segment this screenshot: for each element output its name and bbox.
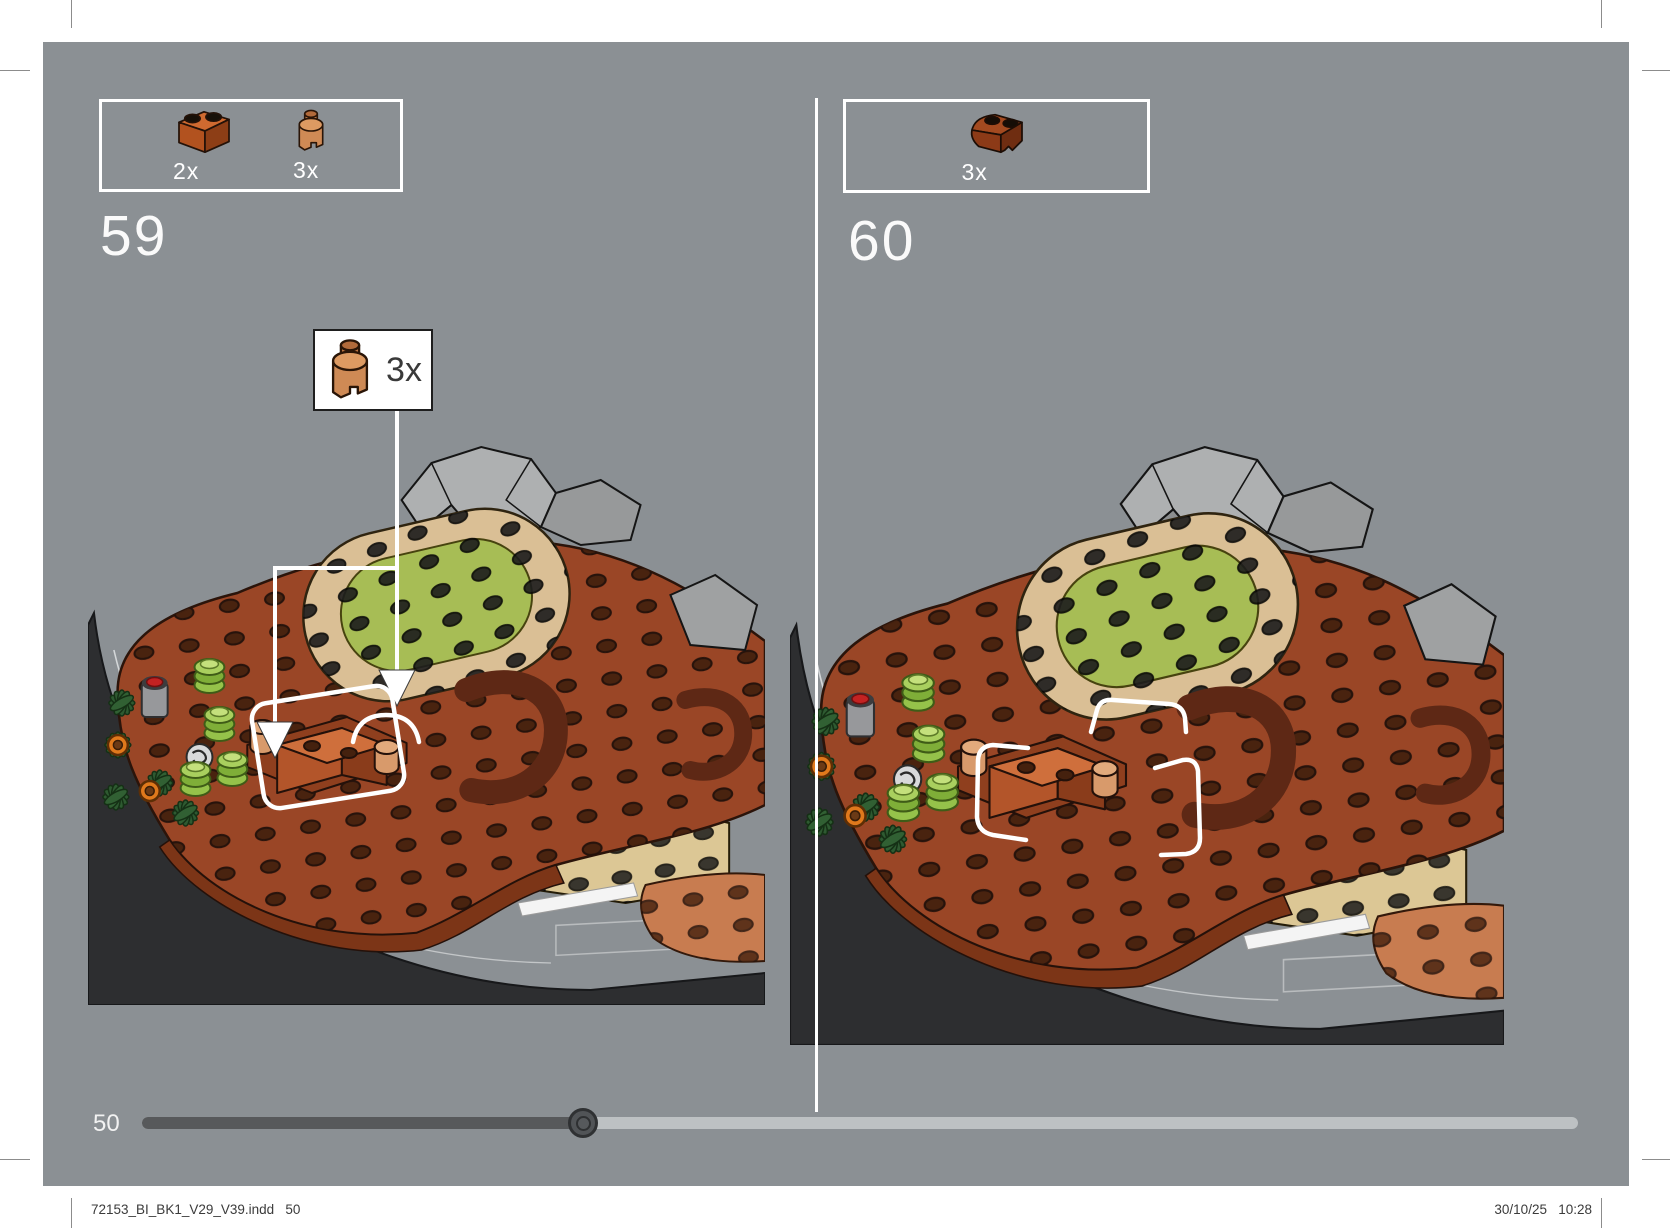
callout-qty: 3x [386, 351, 422, 390]
step-number-60: 60 [848, 213, 915, 270]
callout-box: 3x [313, 329, 433, 411]
panel-divider [815, 98, 818, 1112]
brick-1x1-curved-icon [293, 107, 329, 155]
crop-mark-top-right-h [1642, 70, 1670, 71]
part-qty: 3x [293, 157, 319, 184]
brick-1x2-icon [173, 106, 235, 156]
crop-mark-bottom-right-h [1642, 1159, 1670, 1160]
crop-mark-bottom-left-h [0, 1159, 30, 1160]
callout-brick-1x1-curved-icon [324, 337, 376, 403]
part-brick-1x1-curved: 3x [293, 107, 329, 184]
step-number-59: 59 [100, 208, 167, 265]
progress-knob-inner [576, 1116, 591, 1131]
footer-filename: 72153_BI_BK1_V29_V39.indd 50 [91, 1202, 300, 1217]
crop-mark-top-left-h [0, 70, 30, 71]
parts-box-step-60: 3x [843, 99, 1150, 193]
progress-page-number: 50 [93, 1110, 120, 1138]
part-brick-2x2-curved-corner: 3x [962, 107, 1032, 186]
model-illustration-step-60 [790, 445, 1504, 1045]
brick-2x2-curved-corner-icon [962, 107, 1032, 157]
page-canvas: 2x 3x 59 [43, 42, 1629, 1186]
crop-mark-bottom-right-v [1601, 1198, 1602, 1228]
model-illustration-step-59 [88, 445, 765, 1005]
progress-fill [142, 1117, 583, 1129]
progress-knob [568, 1108, 598, 1138]
crop-mark-top-right-v [1601, 0, 1602, 28]
crop-mark-bottom-left-v [71, 1198, 72, 1228]
instruction-page: { "document": { "type": "lego-building-i… [0, 0, 1672, 1230]
parts-box-step-59: 2x 3x [99, 99, 403, 192]
crop-mark-top-left-v [71, 0, 72, 28]
part-qty: 2x [173, 158, 199, 185]
part-qty: 3x [962, 159, 988, 186]
footer-timestamp: 30/10/25 10:28 [1494, 1202, 1592, 1217]
part-brick-1x2: 2x [173, 106, 235, 185]
